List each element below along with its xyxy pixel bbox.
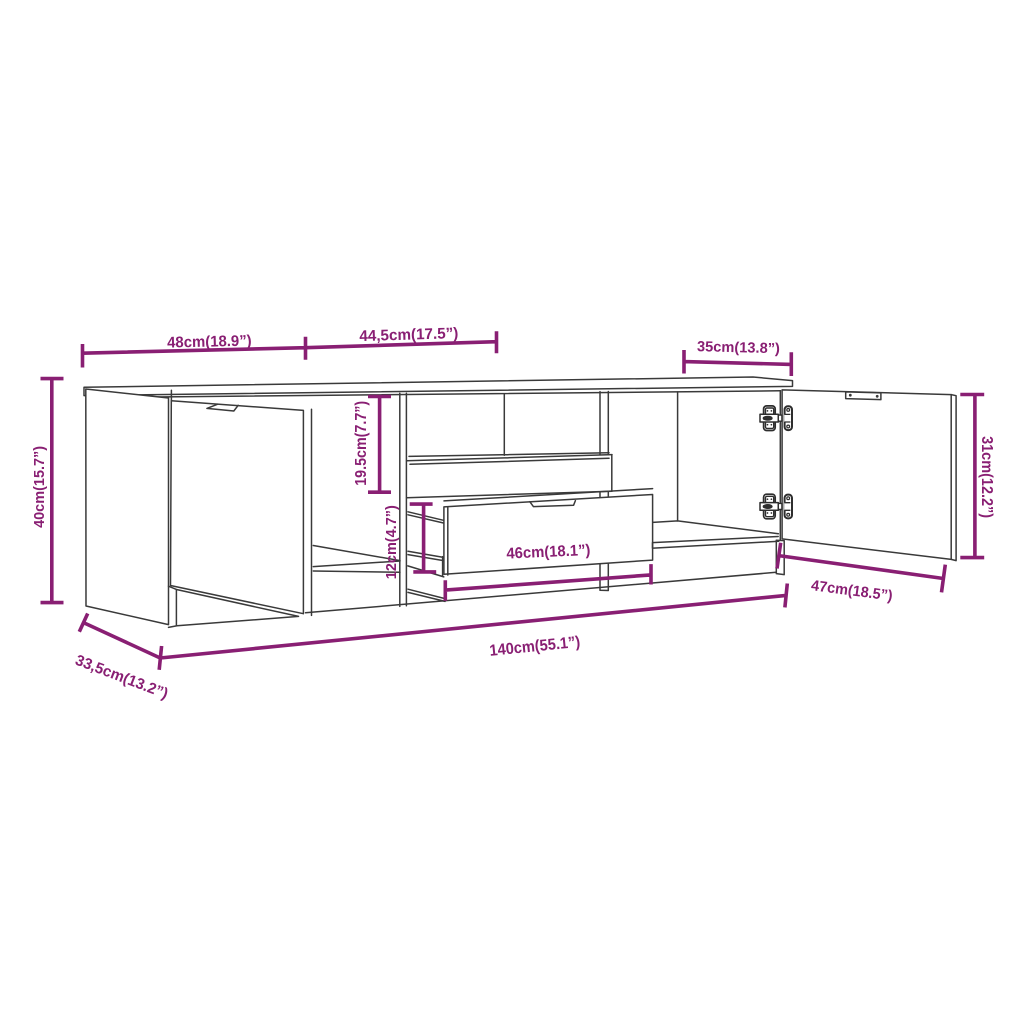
svg-text:19.5cm(7.7”): 19.5cm(7.7”) bbox=[353, 401, 370, 486]
svg-text:44,5cm(17.5”): 44,5cm(17.5”) bbox=[359, 325, 458, 345]
svg-text:140cm(55.1”): 140cm(55.1”) bbox=[489, 634, 581, 660]
svg-text:48cm(18.9”): 48cm(18.9”) bbox=[167, 333, 252, 352]
svg-text:40cm(15.7”): 40cm(15.7”) bbox=[31, 446, 48, 528]
svg-text:12cm(4.7”): 12cm(4.7”) bbox=[384, 505, 400, 579]
svg-text:33,5cm(13.2”): 33,5cm(13.2”) bbox=[73, 652, 171, 703]
svg-text:35cm(13.8”): 35cm(13.8”) bbox=[697, 339, 781, 357]
svg-text:31cm(12.2”): 31cm(12.2”) bbox=[978, 436, 995, 518]
svg-text:47cm(18.5”): 47cm(18.5”) bbox=[810, 577, 894, 605]
